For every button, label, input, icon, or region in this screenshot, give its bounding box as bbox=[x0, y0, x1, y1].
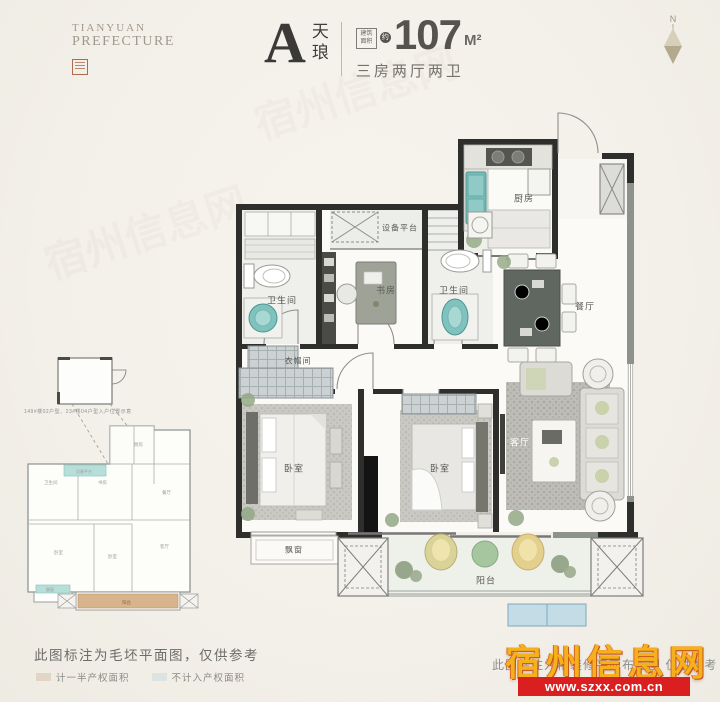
approx-badge: 约 bbox=[380, 32, 391, 43]
blue-marker bbox=[508, 604, 586, 626]
legend-item-half: 计一半产权面积 bbox=[36, 670, 130, 684]
room-label-cloak: 衣帽间 bbox=[285, 356, 312, 367]
balcony-table bbox=[472, 541, 498, 567]
svg-text:卧室: 卧室 bbox=[108, 553, 117, 560]
room-label-bed2: 卧室 bbox=[430, 462, 450, 475]
area-value: 107 bbox=[394, 14, 461, 56]
svg-text:客厅: 客厅 bbox=[160, 543, 169, 550]
plant-icon bbox=[385, 513, 399, 527]
floorplan-page: { "brand":{"line1":"TIANYUAN","line2":"P… bbox=[0, 0, 720, 702]
room-label-balcony: 阳台 bbox=[476, 574, 496, 587]
svg-text:厨房: 厨房 bbox=[134, 441, 143, 448]
compass-icon bbox=[660, 24, 686, 66]
area-block: 建筑面积 约 107 M² 三房两厅两卫 bbox=[356, 14, 482, 81]
armchair bbox=[585, 491, 615, 521]
room-label-equipment: 设备平台 bbox=[382, 223, 418, 234]
toilet bbox=[483, 250, 491, 272]
brand-line1: TIANYUAN bbox=[72, 22, 175, 34]
room-label-kitchen: 厨房 bbox=[514, 192, 534, 205]
desk-chair bbox=[337, 284, 357, 304]
room-label-bath2: 卫生间 bbox=[439, 284, 469, 297]
bed2-headboard bbox=[476, 422, 488, 512]
svg-text:飘窗: 飘窗 bbox=[46, 586, 54, 592]
legend-label-excluded: 不计入产权面积 bbox=[172, 670, 246, 684]
svg-text:阳台: 阳台 bbox=[122, 599, 131, 606]
plant-icon bbox=[241, 393, 255, 407]
shaft-louver bbox=[426, 210, 462, 250]
plant-icon bbox=[508, 510, 524, 526]
legend-item-excluded: 不计入产权面积 bbox=[152, 670, 246, 684]
main-floorplan: 厨房 设备平台 卫生间 书房 卫生间 餐厅 衣帽间 卧室 卧室 客厅 飘窗 阳台 bbox=[236, 112, 666, 630]
svg-text:书房: 书房 bbox=[98, 479, 107, 486]
compass-n-label: N bbox=[660, 14, 686, 24]
mini-plan-note: 149#楼02户型、23#楼04户型入户位置示意 bbox=[24, 408, 132, 415]
balcony-railing bbox=[388, 593, 591, 597]
svg-text:卫生间: 卫生间 bbox=[44, 479, 58, 486]
header-divider bbox=[341, 22, 342, 76]
layout-spec: 三房两厅两卫 bbox=[356, 60, 482, 81]
brand-line2: PREFECTURE bbox=[72, 34, 175, 50]
legend-swatch-half bbox=[36, 673, 51, 681]
room-label-living: 客厅 bbox=[510, 436, 530, 449]
compass: N bbox=[660, 14, 686, 71]
site-watermark-url: www.szxx.com.cn bbox=[518, 677, 690, 696]
ac-panel bbox=[600, 164, 624, 214]
plant-icon bbox=[241, 507, 255, 521]
armchair bbox=[583, 359, 613, 389]
svg-text:卧室: 卧室 bbox=[54, 549, 63, 556]
bg-watermark: 宿州信息网 bbox=[36, 169, 255, 292]
unit-header: A 天琅 建筑面积 约 107 M² 三房两厅两卫 bbox=[264, 14, 481, 81]
coffee-table bbox=[532, 420, 576, 482]
area-box-label: 建筑面积 bbox=[356, 28, 377, 49]
toilet bbox=[244, 264, 254, 288]
room-label-study: 书房 bbox=[376, 284, 396, 297]
bed1-headboard bbox=[246, 412, 258, 504]
room-label-bay: 飘窗 bbox=[285, 545, 303, 556]
mini-floorplan: 厨房 书房 卫生间 餐厅 客厅 卧室 卧室 设备平台 飘窗 阳台 149#楼02… bbox=[14, 352, 224, 627]
bed2-wardrobe bbox=[402, 394, 476, 414]
room-label-bed1: 卧室 bbox=[284, 462, 304, 475]
mini-outline bbox=[28, 426, 190, 610]
unit-letter: A bbox=[264, 14, 306, 72]
unit-name: 天琅 bbox=[310, 22, 327, 64]
tv bbox=[500, 414, 505, 474]
room-label-bath1: 卫生间 bbox=[267, 294, 297, 307]
plant-icon bbox=[497, 255, 511, 269]
svg-text:餐厅: 餐厅 bbox=[162, 489, 171, 496]
legend-swatch-excluded bbox=[152, 673, 167, 681]
svg-text:设备平台: 设备平台 bbox=[76, 468, 92, 474]
area-unit: M² bbox=[464, 32, 482, 49]
mini-floorplan-drawing: 厨房 书房 卫生间 餐厅 客厅 卧室 卧室 设备平台 飘窗 阳台 bbox=[14, 352, 224, 627]
area-legend: 计一半产权面积 不计入产权面积 bbox=[36, 670, 245, 684]
left-footnote: 此图标注为毛坯平面图，仅供参考 bbox=[34, 644, 259, 664]
room-label-dining: 餐厅 bbox=[575, 300, 595, 313]
legend-label-half: 计一半产权面积 bbox=[56, 670, 130, 684]
brand-seal-icon bbox=[72, 59, 88, 75]
bed1-furniture bbox=[241, 393, 352, 521]
brand-block: TIANYUAN PREFECTURE bbox=[72, 22, 175, 75]
